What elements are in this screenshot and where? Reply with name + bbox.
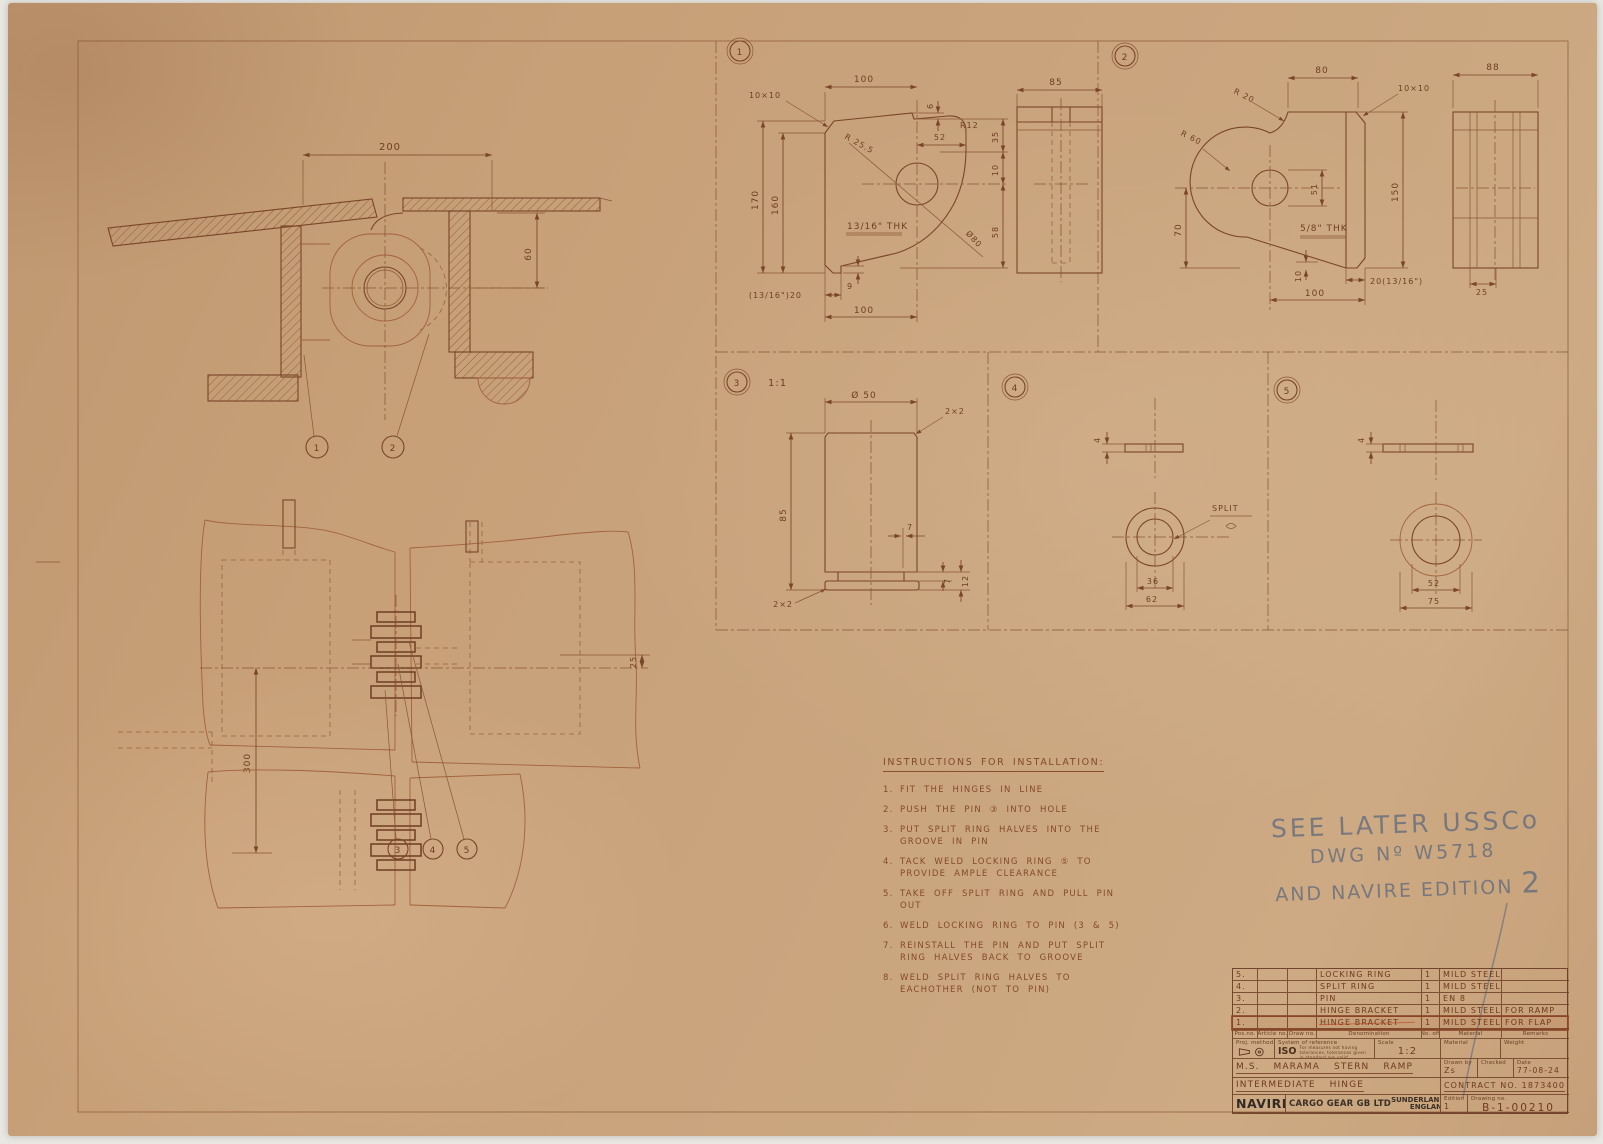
company-row: NAVIRE CARGO GEAR GB LTD SUNDERLAND, ENG… bbox=[1233, 1095, 1567, 1113]
detail-scale: 1:1 bbox=[768, 378, 787, 389]
drawing-number-value: B-1-00210 bbox=[1482, 1102, 1555, 1113]
detail-1-hinge-bracket-flap: 1 100 10×10 170 160 R 25.5 bbox=[727, 38, 1102, 322]
dim-label: 100 bbox=[854, 306, 874, 316]
part-row: 4. SPLIT RING 1 MILD STEEL bbox=[1233, 981, 1567, 993]
reference-row: Proj. method System of reference ISO For… bbox=[1233, 1039, 1567, 1059]
header-drawno: Draw no. bbox=[1288, 1029, 1317, 1039]
part-pos: 1. bbox=[1233, 1017, 1258, 1029]
dim-label: 10 bbox=[991, 164, 1000, 176]
part-drawno bbox=[1288, 993, 1317, 1005]
company-location: SUNDERLAND, ENGLAND bbox=[1391, 1097, 1441, 1111]
header-remarks: Remarks bbox=[1502, 1029, 1569, 1039]
part-drawno bbox=[1288, 1017, 1317, 1029]
dim-label: 170 bbox=[751, 190, 761, 210]
flap-flange-plate bbox=[208, 375, 298, 401]
ring-edge-view bbox=[1383, 444, 1473, 452]
ramp-web-plate bbox=[449, 211, 470, 352]
part-row-highlighted: 1. HINGE BRACKET 1 MILD STEEL FOR FLAP bbox=[1233, 1017, 1567, 1029]
bracket-side-view bbox=[1017, 107, 1102, 273]
ramp-flange-lobe bbox=[478, 378, 530, 404]
part-qty: 1 bbox=[1422, 1017, 1440, 1029]
header-pos: Pos.no. bbox=[1233, 1029, 1258, 1039]
dim-label: 88 bbox=[1486, 63, 1499, 73]
ring-edge-view bbox=[1125, 444, 1183, 452]
part-material: MILD STEEL bbox=[1440, 1005, 1502, 1017]
dim-label: 52 bbox=[1428, 579, 1440, 588]
balloon-1: 1 bbox=[314, 444, 321, 454]
detail-number: 5 bbox=[1284, 387, 1291, 397]
part-remarks: FOR RAMP bbox=[1502, 1005, 1569, 1017]
dim-label: 200 bbox=[379, 142, 401, 153]
drawing-number-cell: Drawing no. B-1-00210 bbox=[1468, 1095, 1569, 1113]
dim-label: 80 bbox=[1315, 66, 1328, 76]
thickness-label: 5/8" THK bbox=[1300, 224, 1348, 234]
part-drawno bbox=[1288, 981, 1317, 993]
dim-label: 51 bbox=[1310, 183, 1319, 195]
dim-label: 10×10 bbox=[749, 91, 781, 100]
sheet-border bbox=[78, 41, 1568, 1112]
part-remarks bbox=[1502, 969, 1569, 981]
pin-collar bbox=[825, 581, 919, 590]
dim-label: 7 bbox=[907, 523, 913, 532]
dim-label: R 60 bbox=[1179, 129, 1203, 147]
project-title-row: M.S. MARAMA STERN RAMP Drawn by Zs Check… bbox=[1233, 1059, 1567, 1078]
part-qty: 1 bbox=[1422, 969, 1440, 981]
pencil-note-line2: DWG Nº W5718 bbox=[1310, 838, 1549, 868]
balloon-5: 5 bbox=[464, 846, 471, 856]
detail-number: 2 bbox=[1122, 53, 1129, 63]
drawing-sheet: 200 60 1 2 bbox=[0, 0, 1603, 1144]
part-drawno bbox=[1288, 1005, 1317, 1017]
dim-label: 150 bbox=[1391, 182, 1401, 202]
part-denomination: HINGE BRACKET bbox=[1317, 1005, 1422, 1017]
instruction-item: 3.PUT SPLIT RING HALVES INTO THE GROOVE … bbox=[883, 824, 1131, 848]
edition-cell: Edition 1 bbox=[1441, 1095, 1468, 1113]
first-angle-projection-icon bbox=[1236, 1047, 1270, 1057]
edition-value: 1 bbox=[1444, 1102, 1464, 1111]
detail-3-pin: 3 1:1 Ø 50 2×2 2×2 85 7 bbox=[724, 369, 970, 609]
part-row: 2. HINGE BRACKET 1 MILD STEEL FOR RAMP bbox=[1233, 1005, 1567, 1017]
detail-number: 4 bbox=[1012, 384, 1019, 394]
dim-label: 2×2 bbox=[945, 407, 965, 416]
dim-label: Ø80 bbox=[964, 228, 985, 249]
instructions-title: INSTRUCTIONS FOR INSTALLATION: bbox=[883, 757, 1104, 772]
dim-label: 2×2 bbox=[773, 600, 793, 609]
dim-label: 25 bbox=[629, 656, 638, 668]
dim-label: 6 bbox=[926, 103, 935, 109]
detail-number: 3 bbox=[734, 379, 741, 389]
dim-label: 10×10 bbox=[1398, 84, 1430, 93]
part-article bbox=[1258, 969, 1288, 981]
project-title: M.S. MARAMA STERN RAMP bbox=[1233, 1059, 1441, 1078]
part-material: MILD STEEL bbox=[1440, 1017, 1502, 1029]
dim-label: 4 bbox=[1093, 437, 1102, 443]
bracket-side-view bbox=[1453, 112, 1538, 268]
parts-list: 5. LOCKING RING 1 MILD STEEL 4. SPLIT RI… bbox=[1232, 968, 1568, 1114]
dim-label: 52 bbox=[934, 133, 946, 142]
dim-label: 4 bbox=[1357, 437, 1366, 443]
dim-label: 35 bbox=[991, 131, 1000, 143]
detail-4-split-ring: 4 4 SPLIT 36 62 bbox=[1002, 374, 1252, 610]
instruction-item: 5.TAKE OFF SPLIT RING AND PULL PIN OUT bbox=[883, 888, 1131, 912]
detail-5-locking-ring: 5 4 52 75 bbox=[1274, 377, 1482, 612]
projection-method-cell: Proj. method bbox=[1233, 1039, 1275, 1059]
thickness-label: 13/16" THK bbox=[847, 222, 908, 232]
dim-label: 100 bbox=[1305, 289, 1325, 299]
dim-label: 12 bbox=[961, 575, 970, 587]
dim-label: 62 bbox=[1146, 595, 1158, 604]
part-qty: 1 bbox=[1422, 1005, 1440, 1017]
part-row: 5. LOCKING RING 1 MILD STEEL bbox=[1233, 969, 1567, 981]
dim-label: 85 bbox=[1049, 78, 1062, 88]
drawn-by-value: Zs bbox=[1444, 1066, 1474, 1075]
instruction-item: 7.REINSTALL THE PIN AND PUT SPLIT RING H… bbox=[883, 940, 1131, 964]
iso-note: For measures not having tolerances, tole… bbox=[1299, 1046, 1371, 1059]
part-remarks: FOR FLAP bbox=[1502, 1017, 1569, 1029]
part-pos: 4. bbox=[1233, 981, 1258, 993]
dim-label: 160 bbox=[771, 195, 781, 215]
pencil-note-edition-number: 2 bbox=[1521, 865, 1543, 900]
flap-deck-plate bbox=[108, 199, 377, 246]
dim-label: 75 bbox=[1428, 597, 1440, 606]
dim-label: 7 bbox=[943, 578, 952, 584]
scale-cell: Scale 1:2 bbox=[1375, 1039, 1441, 1059]
part-material: MILD STEEL bbox=[1440, 969, 1502, 981]
part-row: 3. PIN 1 EN 8 bbox=[1233, 993, 1567, 1005]
dim-label: 58 bbox=[991, 226, 1000, 238]
drawing-subtitle: INTERMEDIATE HINGE bbox=[1233, 1078, 1441, 1095]
part-remarks bbox=[1502, 981, 1569, 993]
bracket-outline bbox=[1190, 112, 1365, 268]
scale-value: 1:2 bbox=[1398, 1046, 1417, 1057]
dim-label: 9 bbox=[847, 282, 853, 291]
dim-label: 100 bbox=[854, 75, 874, 85]
date-cell: Date 77-08-24 bbox=[1514, 1059, 1569, 1078]
balloon-3: 3 bbox=[395, 846, 402, 856]
split-label: SPLIT bbox=[1212, 504, 1239, 513]
part-pos: 5. bbox=[1233, 969, 1258, 981]
dim-label: R 20 bbox=[1232, 87, 1256, 105]
part-pos: 3. bbox=[1233, 993, 1258, 1005]
iso-mark: ISO bbox=[1278, 1046, 1296, 1057]
installation-instructions: INSTRUCTIONS FOR INSTALLATION: 1.FIT THE… bbox=[883, 750, 1131, 1004]
title-block: 5. LOCKING RING 1 MILD STEEL 4. SPLIT RI… bbox=[1232, 968, 1568, 1114]
part-material: EN 8 bbox=[1440, 993, 1502, 1005]
detail-number: 1 bbox=[737, 48, 744, 58]
part-denomination: LOCKING RING bbox=[1317, 969, 1422, 981]
balloon-4: 4 bbox=[430, 846, 437, 856]
part-denomination: SPLIT RING bbox=[1317, 981, 1422, 993]
instruction-item: 4.TACK WELD LOCKING RING ⑤ TO PROVIDE AM… bbox=[883, 856, 1131, 880]
part-qty: 1 bbox=[1422, 993, 1440, 1005]
detail-grid-lines bbox=[716, 41, 1568, 630]
assembly-plan-view: 300 25 bbox=[118, 500, 650, 908]
contract-number: CONTRACT NO. 1873400 bbox=[1441, 1078, 1569, 1095]
hinge-lug-top bbox=[283, 500, 295, 548]
instruction-item: 6.WELD LOCKING RING TO PIN (3 & 5) bbox=[883, 920, 1131, 932]
drawn-by-cell: Drawn by Zs bbox=[1441, 1059, 1478, 1078]
part-denomination: PIN bbox=[1317, 993, 1422, 1005]
parts-header-row: Pos.no. Article no. Draw no. Denominatio… bbox=[1233, 1029, 1567, 1039]
instruction-item: 2.PUSH THE PIN ③ INTO HOLE bbox=[883, 804, 1131, 816]
dim-label: 36 bbox=[1147, 577, 1159, 586]
dim-label: Ø 50 bbox=[851, 390, 876, 401]
assembly-section-view: 200 60 1 2 bbox=[108, 142, 612, 458]
part-qty: 1 bbox=[1422, 981, 1440, 993]
header-denomination: Denomination bbox=[1317, 1029, 1422, 1039]
part-pos: 2. bbox=[1233, 1005, 1258, 1017]
company-cell: CARGO GEAR GB LTD SUNDERLAND, ENGLAND bbox=[1286, 1095, 1441, 1113]
company-name: CARGO GEAR GB LTD bbox=[1289, 1099, 1391, 1109]
hinge-lug-top bbox=[466, 521, 478, 552]
ramp-flange-plate bbox=[455, 352, 533, 378]
dim-label: 10 bbox=[1294, 270, 1303, 282]
header-article: Article no. bbox=[1258, 1029, 1288, 1039]
part-article bbox=[1258, 993, 1288, 1005]
part-remarks bbox=[1502, 993, 1569, 1005]
balloon-2: 2 bbox=[390, 444, 397, 454]
ramp-deck-plate bbox=[403, 198, 600, 211]
dim-label: 85 bbox=[779, 508, 789, 521]
dim-label: 20(13/16") bbox=[1370, 277, 1423, 286]
part-article bbox=[1258, 981, 1288, 993]
hinge-bracket-outline bbox=[330, 234, 430, 346]
system-of-reference-cell: System of reference ISO For measures not… bbox=[1275, 1039, 1375, 1059]
part-drawno bbox=[1288, 969, 1317, 981]
dim-label: 70 bbox=[1174, 223, 1184, 236]
part-article bbox=[1258, 1005, 1288, 1017]
instruction-item: 1.FIT THE HINGES IN LINE bbox=[883, 784, 1131, 796]
part-denomination: HINGE BRACKET bbox=[1317, 1017, 1422, 1029]
date-value: 77-08-24 bbox=[1517, 1066, 1566, 1075]
pencil-note: SEE LATER USSCo DWG Nº W5718 AND NAVIRE … bbox=[1246, 805, 1549, 909]
header-qty: No. off bbox=[1422, 1029, 1440, 1039]
drawing-subtitle-row: INTERMEDIATE HINGE CONTRACT NO. 1873400 bbox=[1233, 1078, 1567, 1095]
dim-label: R12 bbox=[960, 121, 979, 130]
detail-2-hinge-bracket-ramp: 2 80 R 20 R 60 10×10 51 bbox=[1112, 43, 1538, 310]
dim-label: 25 bbox=[1476, 288, 1488, 297]
flap-web-plate bbox=[281, 226, 301, 377]
header-material: Material bbox=[1440, 1029, 1502, 1039]
dim-label: 60 bbox=[524, 247, 534, 260]
part-article bbox=[1258, 1017, 1288, 1029]
dim-label: (13/16")20 bbox=[749, 291, 802, 300]
checked-cell: Checked bbox=[1478, 1059, 1514, 1078]
material-cell: Material bbox=[1441, 1039, 1501, 1059]
instruction-item: 8.WELD SPLIT RING HALVES TO EACHOTHER (N… bbox=[883, 972, 1131, 996]
weight-cell: Weight bbox=[1501, 1039, 1569, 1059]
part-material: MILD STEEL bbox=[1440, 981, 1502, 993]
brand-logo: NAVIRE bbox=[1233, 1095, 1286, 1113]
